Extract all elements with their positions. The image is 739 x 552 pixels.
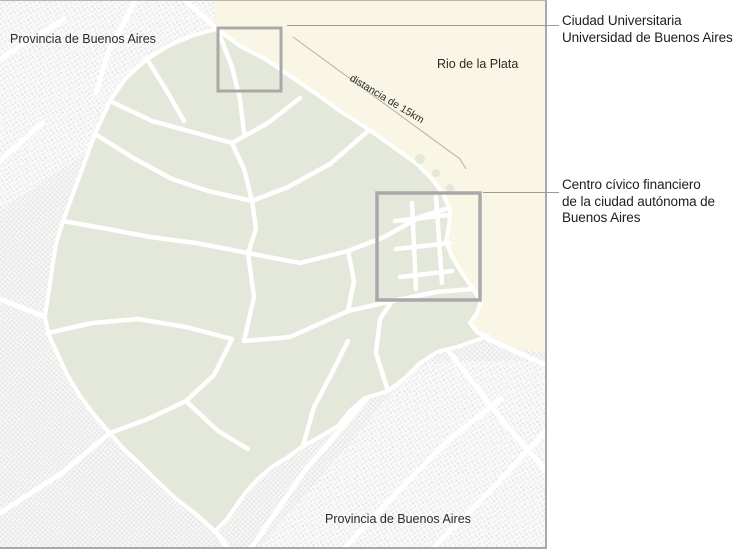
map-canvas: Provincia de Buenos Aires Rio de la Plat… [0,0,547,549]
label-province-top: Provincia de Buenos Aires [10,32,156,46]
figure-buenos-aires-map: Provincia de Buenos Aires Rio de la Plat… [0,0,739,552]
label-province-bottom: Provincia de Buenos Aires [325,512,471,526]
leader-line-ciudad-universitaria [287,25,559,26]
annotation-centro-civico: Centro cívico financiero de la ciudad au… [562,177,738,227]
leader-line-centro-civico [483,192,559,193]
annotation-ciudad-universitaria: Ciudad Universitaria Universidad de Buen… [562,13,738,46]
label-rio-de-la-plata: Rio de la Plata [437,57,518,71]
map-graphic: Provincia de Buenos Aires Rio de la Plat… [0,1,545,547]
